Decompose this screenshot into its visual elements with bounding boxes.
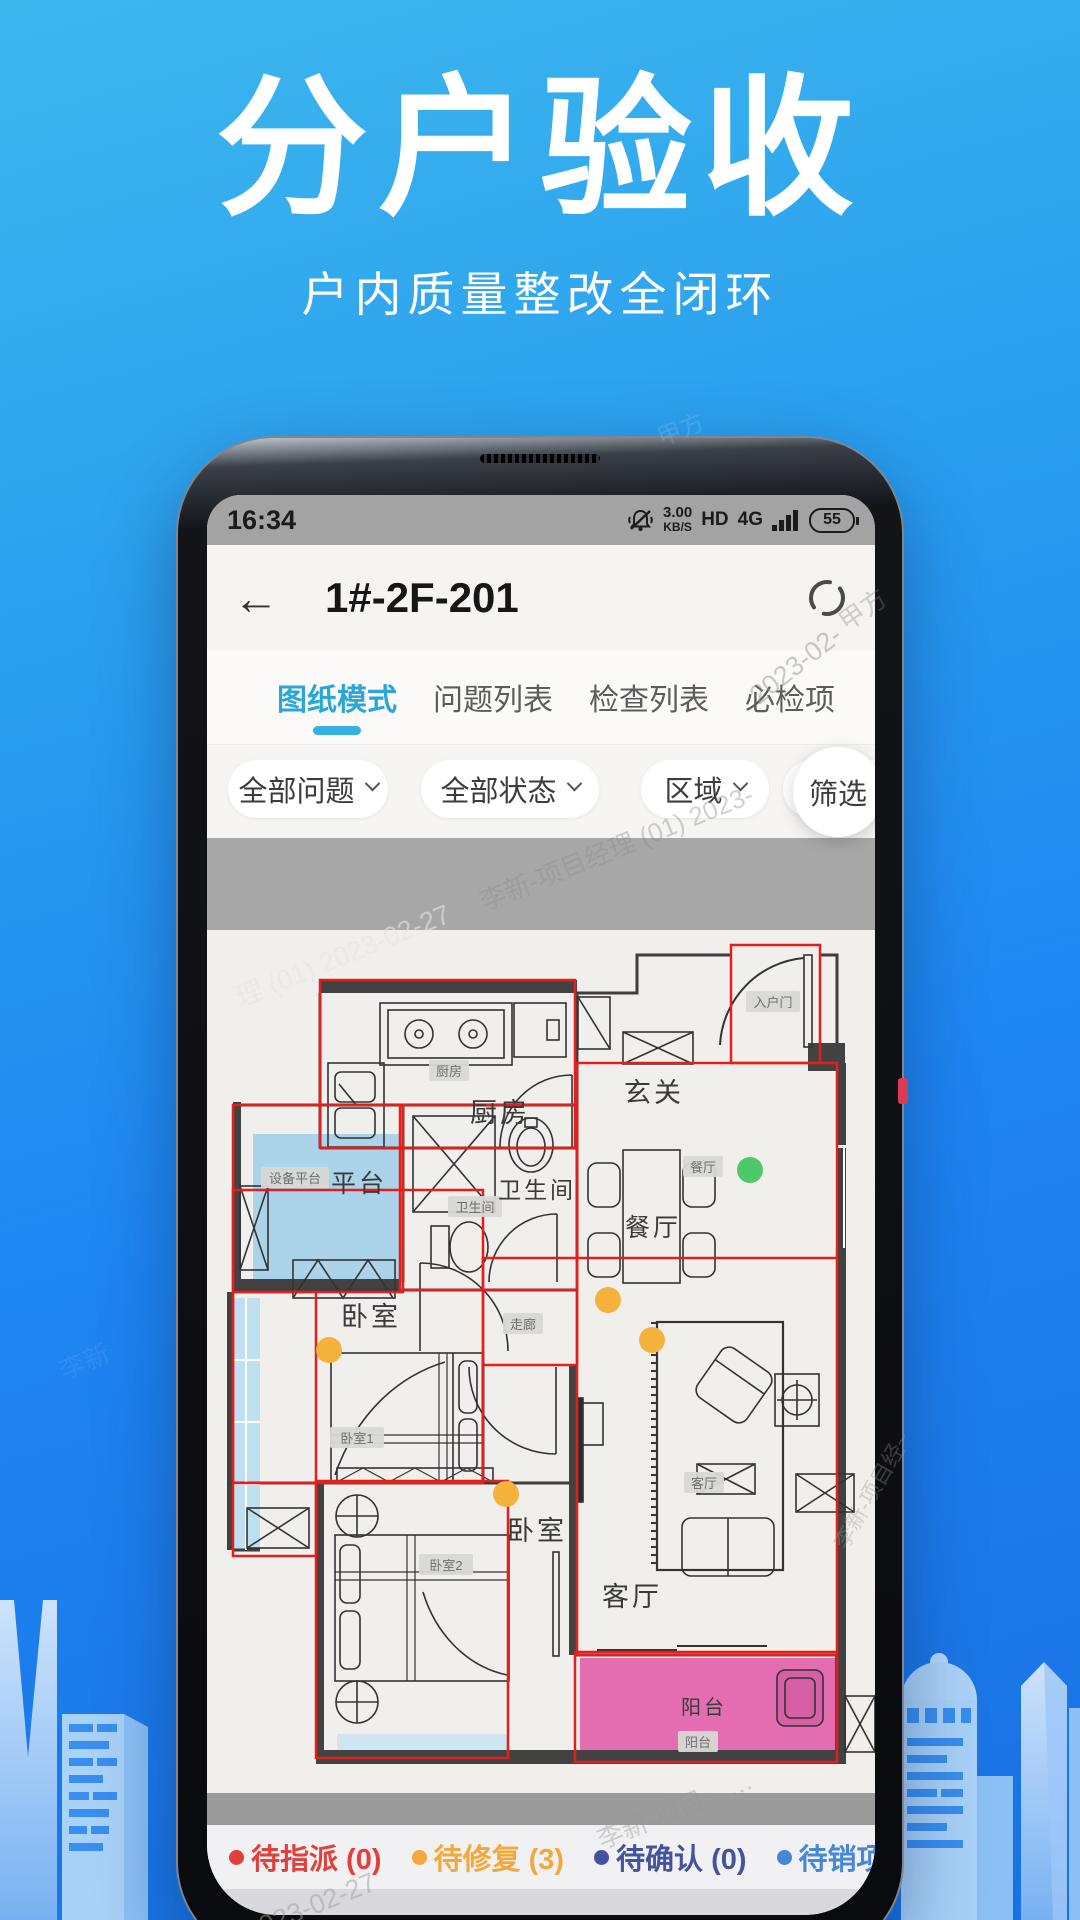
room-label-卫生间: 卫生间 xyxy=(498,1178,576,1204)
legend-item-待销项[interactable]: 待销项 (0) xyxy=(777,1836,875,1878)
floorplan-svg[interactable]: 厨房入户门设备平台卫生间餐厅走廊卧室1客厅卧室2阳台厨房玄关平台卫生间餐厅卧室卧… xyxy=(207,930,875,1793)
clock: 16:34 xyxy=(227,505,296,536)
vibrate-bell-icon xyxy=(627,507,654,534)
app-screen: 16:34 3.00 KB/S HD 4G xyxy=(207,495,875,1915)
filter-chip-区域[interactable]: 区域 xyxy=(641,760,769,818)
inspection-box[interactable] xyxy=(316,1481,508,1758)
chevron-down-icon xyxy=(364,775,380,791)
room-tag-走廊: 走廊 xyxy=(510,1317,536,1332)
watermark-text: 李新 xyxy=(53,1334,115,1388)
room-tag-厨房: 厨房 xyxy=(436,1064,462,1079)
room-label-厨房: 厨房 xyxy=(470,1098,530,1129)
filter-chip-全部问题[interactable]: 全部问题 xyxy=(228,760,388,818)
inspection-box[interactable] xyxy=(483,1258,577,1365)
issue-dot[interactable] xyxy=(595,1287,621,1313)
room-tag-卧室1: 卧室1 xyxy=(340,1431,373,1446)
issue-dot[interactable] xyxy=(493,1481,519,1507)
room-tag-入户门: 入户门 xyxy=(753,995,792,1010)
status-dot-icon xyxy=(229,1850,244,1865)
nav-header: ← 1#-2F-201 xyxy=(207,545,875,650)
equipment-platform-fill xyxy=(253,1134,401,1280)
tab-必检项[interactable]: 必检项 xyxy=(745,650,835,744)
network-speed: 3.00 KB/S xyxy=(663,506,692,534)
phone-speaker xyxy=(480,454,600,463)
room-label-平台: 平台 xyxy=(331,1169,387,1198)
page-subtitle: 户内质量整改全闭环 xyxy=(0,256,1080,325)
bottom-strip xyxy=(207,1889,875,1915)
room-tag-卫生间: 卫生间 xyxy=(455,1200,494,1215)
skyline-left xyxy=(0,1592,152,1920)
room-label-卧室: 卧室 xyxy=(341,1302,401,1333)
issue-dot[interactable] xyxy=(316,1337,342,1363)
chevron-down-icon xyxy=(732,775,748,791)
tab-检查列表[interactable]: 检查列表 xyxy=(589,650,709,744)
phone-mockup: 16:34 3.00 KB/S HD 4G xyxy=(178,438,902,1920)
tab-图纸模式[interactable]: 图纸模式 xyxy=(277,650,397,744)
inspection-box[interactable] xyxy=(577,1063,837,1655)
chevron-down-icon xyxy=(566,775,582,791)
bedroom2-window-strip xyxy=(337,1734,509,1750)
room-tag-餐厅: 餐厅 xyxy=(690,1160,716,1175)
room-label-阳台: 阳台 xyxy=(681,1695,727,1719)
hd-indicator: HD xyxy=(701,509,728,531)
battery-icon: 55 xyxy=(809,508,855,533)
status-dot-icon xyxy=(777,1850,792,1865)
refresh-icon[interactable] xyxy=(805,576,849,620)
legend-item-待修复[interactable]: 待修复 (3) xyxy=(412,1836,565,1878)
filter-chip-全部状态[interactable]: 全部状态 xyxy=(421,760,599,818)
tab-bar: 图纸模式问题列表检查列表必检项 xyxy=(207,650,875,745)
status-bar: 16:34 3.00 KB/S HD 4G xyxy=(207,495,875,545)
room-tag-设备平台: 设备平台 xyxy=(269,1171,321,1186)
issue-dot[interactable] xyxy=(737,1157,763,1183)
canvas-gutter-bottom xyxy=(207,1793,875,1825)
issue-dot[interactable] xyxy=(639,1327,665,1353)
status-legend: 待指派 (0)待修复 (3)待确认 (0)待销项 (0)已销项 (1)记 xyxy=(207,1825,875,1889)
room-tag-卧室2: 卧室2 xyxy=(429,1558,462,1573)
phone-power-button xyxy=(898,1078,908,1104)
legend-item-待确认[interactable]: 待确认 (0) xyxy=(594,1836,747,1878)
back-arrow-icon[interactable]: ← xyxy=(233,575,279,621)
filter-chip-筛选[interactable]: 筛选 xyxy=(793,747,875,837)
room-label-玄关: 玄关 xyxy=(624,1078,684,1109)
room-tag-客厅: 客厅 xyxy=(691,1476,717,1491)
room-label-卧室: 卧室 xyxy=(507,1516,567,1547)
hero: 分户验收 户内质量整改全闭环 xyxy=(0,70,1080,325)
room-label-客厅: 客厅 xyxy=(602,1582,662,1613)
page-title: 分户验收 xyxy=(0,70,1080,230)
room-label-餐厅: 餐厅 xyxy=(625,1213,681,1242)
status-dot-icon xyxy=(412,1850,427,1865)
filter-bar: 全部问题全部状态区域检查项筛选 xyxy=(207,745,875,838)
floorplan-canvas[interactable]: 厨房入户门设备平台卫生间餐厅走廊卧室1客厅卧室2阳台厨房玄关平台卫生间餐厅卧室卧… xyxy=(207,930,875,1793)
unit-title: 1#-2F-201 xyxy=(325,574,805,622)
room-tag-阳台: 阳台 xyxy=(685,1735,711,1750)
page: 分户验收 户内质量整改全闭环 xyxy=(0,0,1080,1920)
canvas-gutter-top xyxy=(207,838,875,930)
status-dot-icon xyxy=(594,1850,609,1865)
skyline-right xyxy=(893,1588,1080,1920)
legend-item-待指派[interactable]: 待指派 (0) xyxy=(229,1836,382,1878)
tab-问题列表[interactable]: 问题列表 xyxy=(433,650,553,744)
signal-icon xyxy=(772,508,800,532)
network-type: 4G xyxy=(738,509,763,531)
